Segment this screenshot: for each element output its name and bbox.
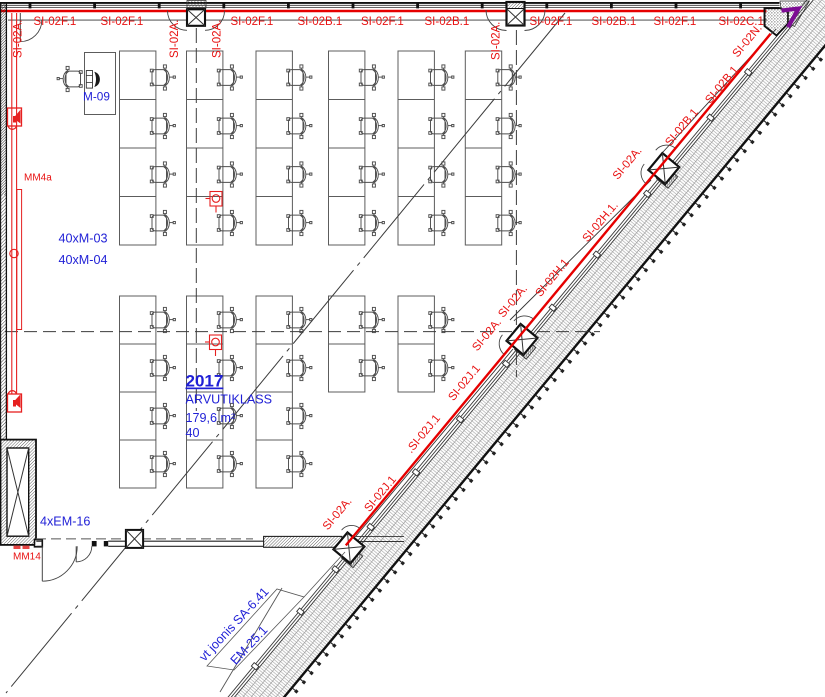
svg-text:SI-02A.: SI-02A. [169, 20, 181, 58]
svg-text:SI-02A.: SI-02A. [13, 20, 25, 58]
svg-text:SI-02F.1: SI-02F.1 [34, 16, 77, 28]
svg-text:SI-02B.1: SI-02B.1 [592, 16, 637, 28]
svg-text:40: 40 [186, 426, 200, 440]
svg-text:2017: 2017 [186, 372, 224, 391]
svg-text:SI-02F.1: SI-02F.1 [654, 16, 697, 28]
svg-text:SI-02F.1: SI-02F.1 [361, 16, 404, 28]
svg-text:MM14: MM14 [13, 552, 41, 563]
svg-text:SI-02B.1: SI-02B.1 [425, 16, 470, 28]
svg-text:MM4a: MM4a [24, 173, 52, 184]
svg-text:40xM-03: 40xM-03 [59, 232, 108, 246]
svg-text:ARVUTIKLASS: ARVUTIKLASS [186, 393, 273, 407]
svg-text:SI-02B.1: SI-02B.1 [298, 16, 343, 28]
svg-text:179,6 m²: 179,6 m² [186, 411, 236, 425]
svg-text:40xM-04: 40xM-04 [59, 253, 108, 267]
svg-text:SI-02F.1: SI-02F.1 [101, 16, 144, 28]
svg-text:4xEM-16: 4xEM-16 [40, 515, 90, 529]
svg-text:SI-02F.1: SI-02F.1 [231, 16, 274, 28]
svg-text:SI-02F.1: SI-02F.1 [530, 16, 573, 28]
svg-text:SI-02A.: SI-02A. [491, 22, 503, 60]
svg-text:M-09: M-09 [83, 90, 110, 104]
svg-text:SI-02A.: SI-02A. [212, 20, 224, 58]
